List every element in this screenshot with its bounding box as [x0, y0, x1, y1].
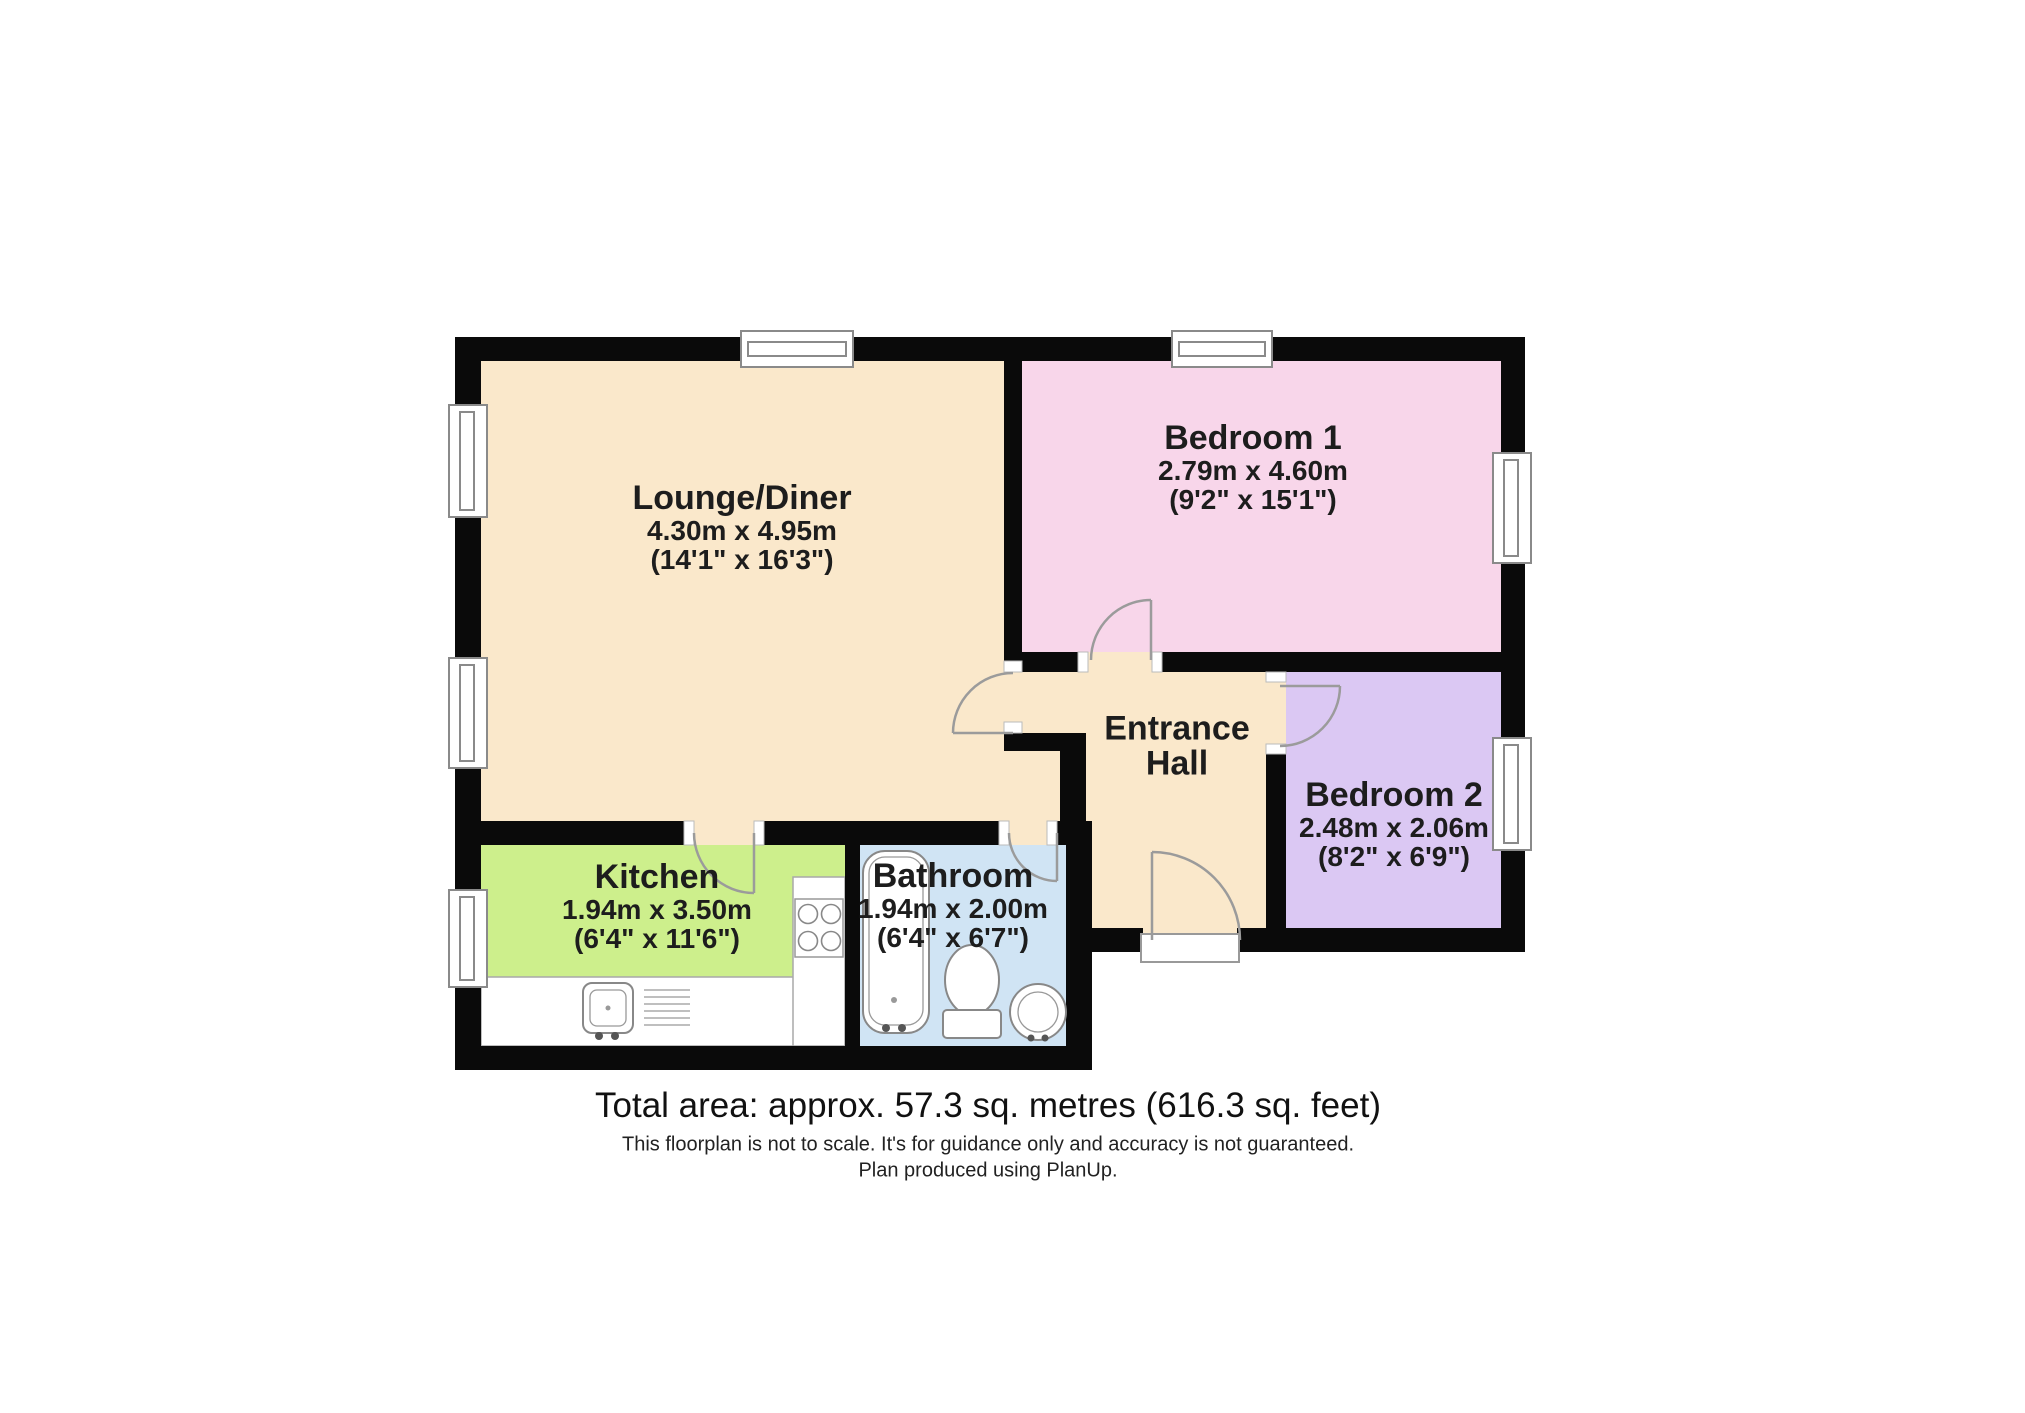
room-name: Hall	[1104, 747, 1250, 782]
jamb	[1004, 722, 1022, 733]
basin	[1010, 984, 1066, 1042]
lounge-label: Lounge/Diner 4.30m x 4.95m (14'1" x 16'3…	[632, 481, 851, 575]
jamb	[1004, 661, 1022, 672]
kitchen-sink	[583, 983, 633, 1040]
tap-icon	[611, 1032, 619, 1040]
credit-text: Plan produced using PlanUp.	[858, 1160, 1117, 1183]
room-dimensions-metric: 2.48m x 2.06m	[1299, 814, 1489, 843]
wall-bottom-left	[455, 1046, 1092, 1070]
room-dimensions-imperial: (6'4" x 11'6")	[562, 925, 752, 954]
jamb	[999, 821, 1009, 845]
room-name: Bathroom	[858, 859, 1048, 894]
window-lounge-left-lower	[449, 658, 487, 768]
room-dimensions-imperial: (8'2" x 6'9")	[1299, 843, 1489, 872]
bathroom-label: Bathroom 1.94m x 2.00m (6'4" x 6'7")	[858, 859, 1048, 953]
jamb	[1152, 652, 1162, 672]
room-name: Entrance	[1104, 712, 1250, 747]
jamb	[684, 821, 694, 845]
window-lounge-left-upper	[449, 405, 487, 517]
outside-notch	[1092, 952, 1501, 1046]
window-bedroom1-top	[1172, 331, 1272, 367]
room-name: Bedroom 2	[1299, 778, 1489, 813]
hob-burner-icon	[799, 932, 818, 951]
window-bedroom2-right	[1493, 738, 1531, 850]
room-dimensions-imperial: (14'1" x 16'3")	[632, 546, 851, 575]
room-dimensions-imperial: (9'2" x 15'1")	[1158, 486, 1348, 515]
toilet	[943, 945, 1001, 1038]
wall-bedroom2-left-lower	[1266, 748, 1286, 928]
floorplan-page: Lounge/Diner 4.30m x 4.95m (14'1" x 16'3…	[0, 0, 2025, 1413]
wall-right	[1501, 337, 1525, 952]
window-lounge-top	[741, 331, 853, 367]
room-dimensions-metric: 1.94m x 3.50m	[562, 896, 752, 925]
wall-hall-stub-horizontal	[1004, 733, 1086, 751]
disclaimer-text: This floorplan is not to scale. It's for…	[622, 1134, 1354, 1157]
floorplan-drawing	[0, 0, 2025, 1413]
entrance-hall-label: Entrance Hall	[1104, 712, 1250, 783]
room-name: Kitchen	[562, 860, 752, 895]
hob-burner-icon	[822, 932, 841, 951]
wall-kitchen-top-right	[758, 821, 1005, 845]
window-bedroom1-right	[1493, 453, 1531, 563]
tap-icon	[1028, 1035, 1035, 1042]
room-dimensions-imperial: (6'4" x 6'7")	[858, 924, 1048, 953]
hob-burner-icon	[822, 905, 841, 924]
bedroom1-label: Bedroom 1 2.79m x 4.60m (9'2" x 15'1")	[1158, 421, 1348, 515]
kitchen-label: Kitchen 1.94m x 3.50m (6'4" x 11'6")	[562, 860, 752, 954]
bedroom2-label: Bedroom 2 2.48m x 2.06m (8'2" x 6'9")	[1299, 778, 1489, 872]
room-name: Bedroom 1	[1158, 421, 1348, 456]
wall-top	[455, 337, 1525, 361]
tap-icon	[595, 1032, 603, 1040]
wall-lounge-bedroom1-divider	[1004, 361, 1022, 652]
wall-bedroom1-bottom-right	[1152, 652, 1501, 672]
front-door-threshold	[1141, 934, 1239, 962]
tap-icon	[898, 1024, 906, 1032]
hob-burner-icon	[799, 905, 818, 924]
tap-icon	[882, 1024, 890, 1032]
wall-bottom-hall-left	[1092, 928, 1143, 952]
tap-icon	[1042, 1035, 1049, 1042]
jamb	[1266, 672, 1286, 682]
room-dimensions-metric: 4.30m x 4.95m	[632, 517, 851, 546]
kitchen-hob	[795, 899, 843, 957]
wall-kitchen-top-left	[455, 821, 690, 845]
jamb	[1047, 821, 1057, 845]
room-name: Lounge/Diner	[632, 481, 851, 516]
wall-hall-stub-vertical	[1060, 751, 1086, 821]
window-kitchen-left	[449, 890, 487, 987]
jamb	[1078, 652, 1088, 672]
room-dimensions-metric: 1.94m x 2.00m	[858, 895, 1048, 924]
wall-bathroom-right	[1066, 821, 1092, 1070]
total-area-text: Total area: approx. 57.3 sq. metres (616…	[595, 1086, 1381, 1126]
wall-bottom-right	[1237, 928, 1525, 952]
jamb	[754, 821, 764, 845]
room-dimensions-metric: 2.79m x 4.60m	[1158, 457, 1348, 486]
wall-bathroom-top-right	[1057, 821, 1092, 845]
